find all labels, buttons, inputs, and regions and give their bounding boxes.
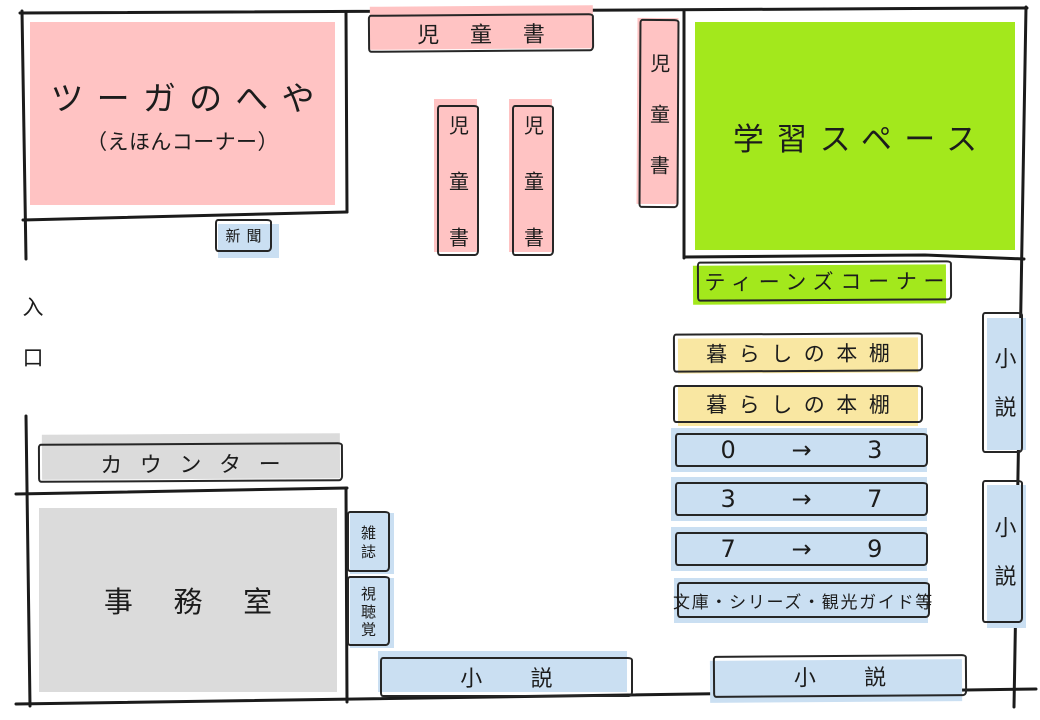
shelf-living-books-1: 暮らしの本棚 — [673, 332, 923, 372]
shelf-label: 小説 — [794, 659, 935, 692]
shelf-novels-bottom-right: 小説 — [713, 654, 967, 698]
shelf-label: 児童書 — [444, 115, 473, 283]
shelf-label: 児童書 — [644, 52, 674, 205]
entrance-label: 入口 — [17, 296, 47, 397]
shelf-novels-bottom-left: 小説 — [380, 657, 633, 697]
shelf-label: 3 → 7 — [721, 485, 883, 513]
shelf-magazines: 雑誌 — [347, 511, 390, 572]
shelf-audiovisual: 視聴覚 — [347, 576, 390, 646]
shelf-label: 文庫・シリーズ・観光ガイド等 — [673, 588, 934, 613]
shelf-label: 雑誌 — [358, 525, 379, 563]
room-study-space: 学習スペース — [695, 22, 1015, 250]
shelf-novels-side-upper: 小説 — [982, 312, 1023, 453]
shelf-label: 小説 — [987, 516, 1019, 613]
shelf-teens-corner: ティーンズコーナー — [697, 260, 952, 301]
shelf-label: 暮らしの本棚 — [706, 389, 901, 419]
shelf-label: 小説 — [987, 347, 1019, 444]
shelf-living-books-2: 暮らしの本棚 — [673, 385, 923, 423]
room-title: 事務室 — [104, 579, 313, 621]
shelf-age-3-7: 3 → 7 — [675, 482, 928, 516]
shelf-label: 新聞 — [225, 225, 267, 246]
shelf-label: 暮らしの本棚 — [706, 337, 901, 368]
shelf-label: 0 → 3 — [721, 436, 883, 464]
shelf-label: 児童書 — [417, 16, 576, 49]
shelf-label: 7 → 9 — [721, 535, 883, 563]
counter-label: カウンター — [100, 446, 298, 479]
shelf-label: 小説 — [460, 661, 601, 693]
shelf-novels-side-lower: 小説 — [982, 480, 1023, 623]
counter: カウンター — [38, 442, 343, 483]
room-title: ツーガのへや — [50, 72, 327, 120]
shelf-label: 児童書 — [519, 115, 548, 283]
room-title: 学習スペース — [733, 114, 990, 159]
room-office: 事務室 — [39, 508, 337, 692]
room-picture-book-corner: ツーガのへや （えほんコーナー） — [30, 22, 335, 205]
shelf-age-7-9: 7 → 9 — [675, 532, 928, 566]
shelf-age-0-3: 0 → 3 — [675, 433, 928, 467]
shelf-children-books-mid-2: 児童書 — [512, 105, 554, 256]
shelf-label: 視聴覚 — [358, 586, 379, 639]
room-subtitle: （えほんコーナー） — [86, 126, 279, 156]
shelf-paperback-series-guides: 文庫・シリーズ・観光ガイド等 — [677, 582, 930, 618]
shelf-children-books-right: 児童書 — [639, 19, 680, 208]
shelf-label: ティーンズコーナー — [704, 265, 951, 296]
shelf-newspaper: 新聞 — [215, 219, 272, 252]
shelf-children-books-mid-1: 児童書 — [437, 105, 479, 256]
library-floor-map: ツーガのへや （えほんコーナー） 学習スペース 事務室 入口 児童書 児童書 児… — [0, 0, 1040, 720]
shelf-children-books-top: 児童書 — [368, 13, 594, 53]
